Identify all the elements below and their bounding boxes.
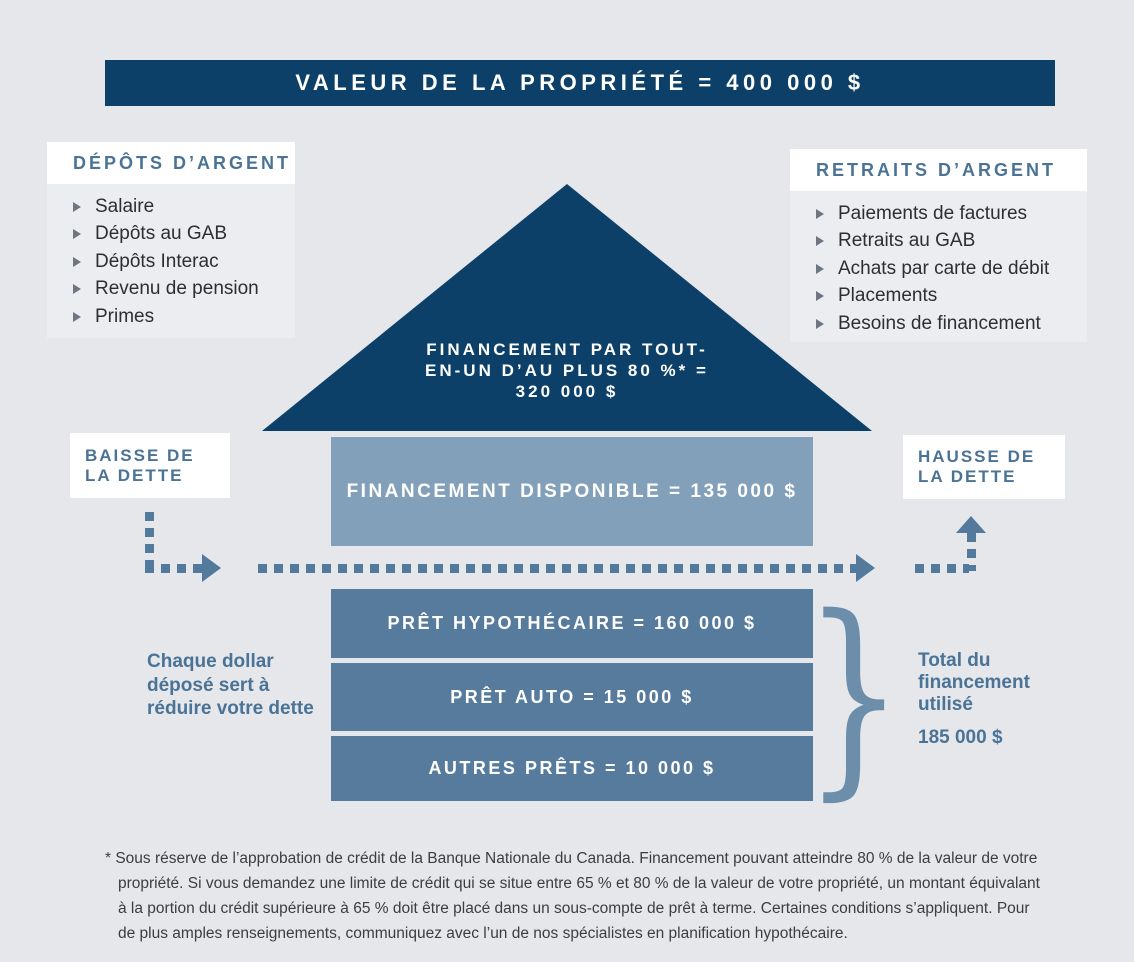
roof-label-line: EN-UN D’AU PLUS 80 %* = — [262, 360, 872, 381]
list-item-label: Salaire — [95, 196, 154, 218]
auto-loan-text: PRÊT AUTO = 15 000 $ — [450, 687, 694, 708]
list-item: Primes — [73, 303, 295, 331]
total-note-line: utilisé — [918, 694, 1030, 716]
dashed-line-horizontal — [915, 564, 969, 573]
arrowhead-up-icon — [956, 516, 986, 533]
roof-label-line: FINANCEMENT PAR TOUT- — [262, 339, 872, 360]
withdrawals-box: RETRAITS D’ARGENT Paiements de factures … — [790, 149, 1087, 342]
withdrawals-box-title: RETRAITS D’ARGENT — [816, 160, 1056, 181]
loans-stack: PRÊT HYPOTHÉCAIRE = 160 000 $ PRÊT AUTO … — [331, 589, 813, 801]
all-in-one-financing-infographic: VALEUR DE LA PROPRIÉTÉ = 400 000 $ DÉPÔT… — [0, 0, 1134, 962]
triangle-bullet-icon — [73, 284, 81, 294]
list-item: Placements — [816, 283, 1087, 311]
list-item-label: Revenu de pension — [95, 278, 259, 300]
list-item: Besoins de financement — [816, 310, 1087, 338]
deposits-box-title: DÉPÔTS D’ARGENT — [73, 153, 291, 174]
list-item: Paiements de factures — [816, 200, 1087, 228]
list-item: Achats par carte de débit — [816, 255, 1087, 283]
auto-loan-bar: PRÊT AUTO = 15 000 $ — [331, 663, 813, 731]
list-item-label: Primes — [95, 306, 154, 328]
total-note-line: Total du — [918, 650, 1030, 672]
triangle-bullet-icon — [73, 202, 81, 212]
roof-label-line: 320 000 $ — [262, 381, 872, 402]
legal-footnote: * Sous réserve de l’approbation de crédi… — [105, 846, 1043, 946]
deposits-box: DÉPÔTS D’ARGENT Salaire Dépôts au GAB Dé… — [47, 142, 295, 338]
withdrawals-box-header: RETRAITS D’ARGENT — [790, 149, 1087, 191]
property-value-text: VALEUR DE LA PROPRIÉTÉ = 400 000 $ — [295, 70, 864, 96]
curly-brace-icon: } — [818, 586, 890, 806]
list-item: Dépôts Interac — [73, 248, 295, 276]
triangle-bullet-icon — [816, 264, 824, 274]
dashed-line-horizontal — [145, 564, 202, 573]
debt-decrease-line: LA DETTE — [85, 466, 230, 486]
list-item: Dépôts au GAB — [73, 221, 295, 249]
list-item-label: Retraits au GAB — [838, 230, 975, 252]
mortgage-loan-bar: PRÊT HYPOTHÉCAIRE = 160 000 $ — [331, 589, 813, 658]
list-item-label: Placements — [838, 285, 937, 307]
deposit-reduces-debt-note: Chaque dollar déposé sert à réduire votr… — [147, 650, 314, 721]
list-item-label: Dépôts au GAB — [95, 223, 227, 245]
total-financing-used-note: Total du financement utilisé 185 000 $ — [918, 650, 1030, 749]
list-item-label: Dépôts Interac — [95, 251, 219, 273]
debt-decrease-line: BAISSE DE — [85, 446, 230, 466]
triangle-bullet-icon — [73, 229, 81, 239]
note-line: Chaque dollar — [147, 650, 314, 674]
available-financing-bar: FINANCEMENT DISPONIBLE = 135 000 $ — [331, 437, 813, 546]
total-note-line: financement — [918, 672, 1030, 694]
debt-increase-line: LA DETTE — [918, 467, 1065, 487]
debt-increase-line: HAUSSE DE — [918, 447, 1065, 467]
triangle-bullet-icon — [816, 291, 824, 301]
other-loans-text: AUTRES PRÊTS = 10 000 $ — [428, 758, 715, 779]
withdrawals-list: Paiements de factures Retraits au GAB Ac… — [790, 191, 1087, 338]
list-item-label: Paiements de factures — [838, 203, 1027, 225]
list-item-label: Besoins de financement — [838, 313, 1041, 335]
dashed-line-vertical — [145, 512, 154, 564]
deposits-box-header: DÉPÔTS D’ARGENT — [47, 142, 295, 184]
total-financing-amount: 185 000 $ — [918, 727, 1030, 749]
debt-increase-label: HAUSSE DE LA DETTE — [903, 435, 1065, 499]
list-item-label: Achats par carte de débit — [838, 258, 1049, 280]
note-line: réduire votre dette — [147, 697, 314, 721]
dashed-line-vertical — [967, 533, 976, 571]
triangle-bullet-icon — [816, 236, 824, 246]
property-value-banner: VALEUR DE LA PROPRIÉTÉ = 400 000 $ — [105, 60, 1055, 106]
list-item: Revenu de pension — [73, 276, 295, 304]
other-loans-bar: AUTRES PRÊTS = 10 000 $ — [331, 736, 813, 801]
triangle-bullet-icon — [73, 257, 81, 267]
triangle-bullet-icon — [73, 312, 81, 322]
debt-decrease-label: BAISSE DE LA DETTE — [70, 433, 230, 498]
arrowhead-right-icon — [202, 554, 221, 582]
triangle-bullet-icon — [816, 209, 824, 219]
mortgage-loan-text: PRÊT HYPOTHÉCAIRE = 160 000 $ — [387, 613, 756, 634]
note-line: déposé sert à — [147, 674, 314, 698]
available-financing-text: FINANCEMENT DISPONIBLE = 135 000 $ — [347, 481, 798, 503]
deposits-list: Salaire Dépôts au GAB Dépôts Interac Rev… — [47, 184, 295, 331]
dashed-line-horizontal — [258, 564, 856, 573]
list-item: Retraits au GAB — [816, 228, 1087, 256]
list-item: Salaire — [73, 193, 295, 221]
triangle-bullet-icon — [816, 319, 824, 329]
roof-label: FINANCEMENT PAR TOUT- EN-UN D’AU PLUS 80… — [262, 339, 872, 402]
